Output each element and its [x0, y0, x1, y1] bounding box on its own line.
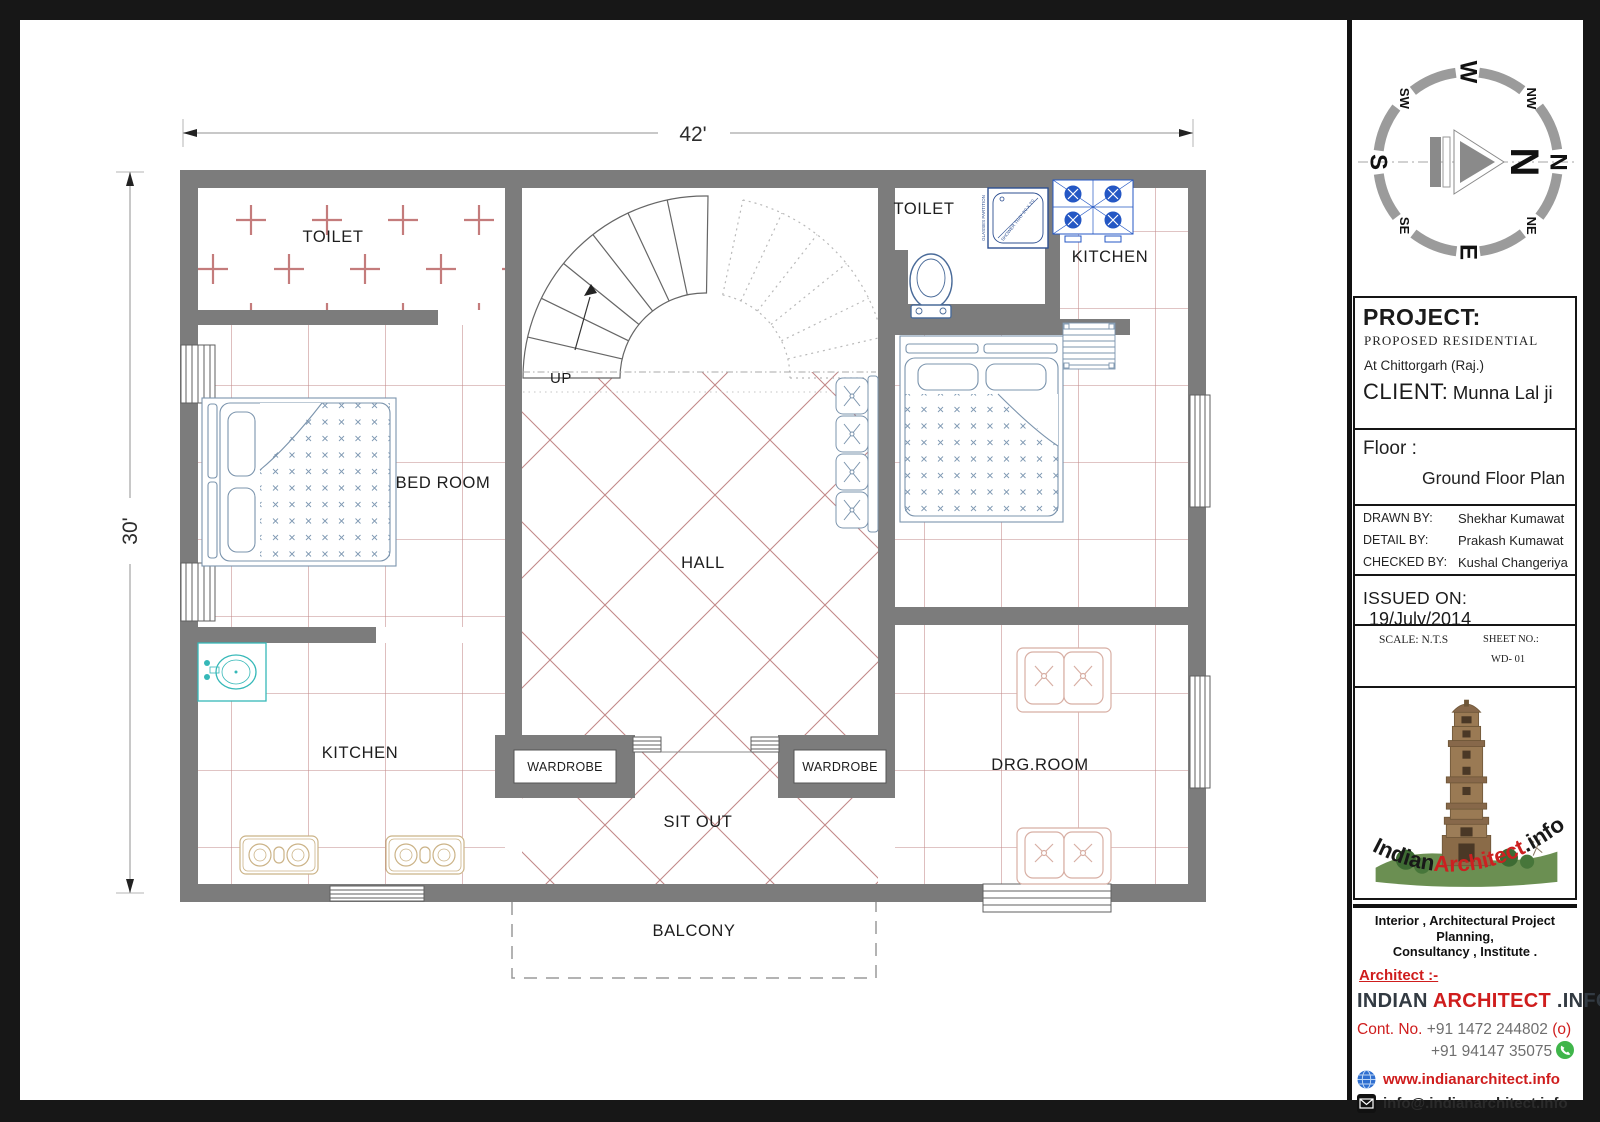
basin-icon	[198, 643, 266, 701]
credit-row: CHECKED BY: Kushal Changeriya	[1363, 555, 1575, 575]
checked-by-value: Kushal Changeriya	[1458, 555, 1568, 570]
compass-needle: N	[1430, 130, 1546, 194]
hall-label: HALL	[681, 554, 725, 572]
wc-icon	[910, 254, 952, 318]
project-box: PROJECT: PROPOSED RESIDENTIAL At Chittor…	[1353, 296, 1577, 430]
phone-1: +91 1472 244802	[1427, 1021, 1548, 1038]
shower-icon: GLASSES PARTITION SHOWER TRAY 3'0 X 3'0	[981, 188, 1048, 248]
staircase	[523, 196, 887, 392]
compass-w-label: W	[1455, 61, 1482, 84]
kitchen-right-label: KITCHEN	[1072, 248, 1149, 266]
floor-value: Ground Floor Plan	[1355, 468, 1565, 489]
scale-label: SCALE: N.T.S	[1379, 634, 1448, 646]
phone-2: +91 94147 35075	[1431, 1043, 1552, 1060]
compass-sw-label: SW	[1397, 88, 1412, 110]
kitchen-left-label: KITCHEN	[322, 744, 399, 762]
window-drg-room	[1190, 676, 1210, 788]
compass-e-label: E	[1455, 244, 1482, 260]
hall-floor	[522, 372, 878, 884]
floor-plan: GLASSES PARTITION SHOWER TRAY 3'0 X 3'0	[20, 20, 1347, 1100]
sofa-icon-hall	[836, 376, 878, 532]
compass-se-label: SE	[1397, 217, 1412, 235]
stove-icon	[1053, 180, 1133, 242]
client-name: Munna Lal ji	[1453, 382, 1553, 403]
floor-box: Floor : Ground Floor Plan	[1353, 428, 1577, 506]
window-bedroom-left-1	[181, 345, 215, 403]
checked-by-label: CHECKED BY:	[1363, 555, 1447, 569]
credit-row: DETAIL BY: Prakash Kumawat	[1363, 533, 1575, 553]
sheet-no-value: WD- 01	[1491, 654, 1525, 665]
compass-rose: N N E S W NW NE SW SE	[1352, 22, 1583, 294]
sheet-no-label: SHEET NO.:	[1483, 634, 1539, 645]
website-text: www.indianarchitect.info	[1383, 1071, 1560, 1088]
tower-logo: IndianArchitect.info	[1355, 688, 1577, 896]
dimension-top: 42'	[183, 118, 1193, 147]
toilet-left-floor	[198, 188, 505, 310]
sofa-icon-drg-bottom	[1017, 828, 1111, 884]
title-block-panel: N N E S W NW NE SW SE PROJECT: PROPOSED …	[1347, 20, 1583, 1100]
email-line: info@.indianarchitect.info	[1357, 1095, 1577, 1112]
brand-architect: ARCHITECT	[1433, 990, 1551, 1012]
balcony-outline	[512, 902, 876, 978]
scale-sheet-box: SCALE: N.T.S SHEET NO.: WD- 01	[1353, 624, 1577, 688]
sit-out-label: SIT OUT	[664, 813, 733, 831]
wardrobe-left-label: WARDROBE	[527, 760, 603, 774]
dimension-height-label: 30'	[119, 517, 142, 544]
dimension-width-label: 42'	[679, 123, 706, 146]
balcony-label: BALCONY	[652, 922, 735, 940]
credits-box: DRAWN BY: Shekhar Kumawat DETAIL BY: Pra…	[1353, 504, 1577, 576]
detail-by-label: DETAIL BY:	[1363, 533, 1428, 547]
dimension-left: 30'	[115, 172, 145, 893]
drawing-sheet: GLASSES PARTITION SHOWER TRAY 3'0 X 3'0	[20, 20, 1583, 1100]
services-line1: Interior , Architectural Project Plannin…	[1353, 913, 1577, 944]
hob-icon-1	[240, 836, 318, 874]
toilet-left-label: TOILET	[302, 228, 363, 246]
detail-by-value: Prakash Kumawat	[1458, 533, 1564, 548]
up-label: UP	[550, 370, 572, 387]
compass-ne-label: NE	[1524, 217, 1539, 235]
sill-right	[751, 737, 779, 752]
hob-icon-2	[386, 836, 464, 874]
credit-row: DRAWN BY: Shekhar Kumawat	[1363, 511, 1575, 531]
architect-label: Architect :-	[1359, 967, 1577, 984]
door-steps-drg	[983, 884, 1111, 912]
drawn-by-label: DRAWN BY:	[1363, 511, 1433, 525]
brand-wordmark: INDIAN ARCHITECT .INFO	[1357, 990, 1577, 1013]
contact-line-1: Cont. No. +91 1472 244802 (o)	[1357, 1021, 1577, 1039]
toilet-right-label: TOILET	[893, 200, 954, 218]
services-text: Interior , Architectural Project Plannin…	[1353, 913, 1577, 960]
email-text: info@.indianarchitect.info	[1383, 1095, 1568, 1112]
architect-info: Interior , Architectural Project Plannin…	[1353, 904, 1577, 1100]
globe-icon	[1357, 1070, 1376, 1093]
wardrobe-right-label: WARDROBE	[802, 760, 878, 774]
phone-1-note: (o)	[1552, 1021, 1571, 1038]
issued-label: ISSUED ON:	[1363, 588, 1467, 608]
contact-line-2: +91 94147 35075	[1431, 1041, 1577, 1064]
window-kitchen-left	[330, 886, 424, 901]
drawn-by-value: Shekhar Kumawat	[1458, 511, 1564, 526]
window-bedroom-right	[1190, 395, 1210, 507]
website-line: www.indianarchitect.info	[1357, 1071, 1577, 1088]
sill-left	[633, 737, 661, 752]
glass-partition-label: GLASSES PARTITION	[981, 195, 986, 241]
project-location: At Chittorgarh (Raj.)	[1364, 358, 1575, 373]
contact-label: Cont. No.	[1357, 1021, 1422, 1038]
services-line2: Consultancy , Institute .	[1353, 944, 1577, 960]
brand-indian: INDIAN	[1357, 990, 1428, 1012]
floor-label: Floor :	[1363, 438, 1575, 460]
issued-box: ISSUED ON: 19/July/2014	[1353, 574, 1577, 626]
project-heading: PROJECT:	[1363, 304, 1575, 331]
logo-box: IndianArchitect.info	[1353, 686, 1577, 900]
window-bedroom-left-2	[181, 563, 215, 621]
whatsapp-icon	[1556, 1041, 1574, 1064]
project-type: PROPOSED RESIDENTIAL	[1364, 333, 1575, 349]
email-icon	[1357, 1094, 1376, 1117]
bedroom-left-label: BED ROOM	[396, 474, 491, 492]
tower-illustration	[1442, 700, 1490, 866]
compass-n-label: N	[1545, 153, 1572, 170]
brand-info: .INFO	[1557, 990, 1600, 1012]
compass-s-label: S	[1365, 154, 1392, 170]
client-label: CLIENT:	[1363, 379, 1448, 404]
bed-icon-left	[202, 398, 396, 566]
compass-nw-label: NW	[1524, 88, 1539, 110]
client-row: CLIENT: Munna Lal ji	[1363, 379, 1575, 405]
sofa-icon-drg-top	[1017, 648, 1111, 712]
side-table-icon	[1063, 323, 1115, 369]
compass-needle-label: N	[1502, 148, 1546, 177]
drg-room-label: DRG.ROOM	[991, 756, 1088, 774]
bed-icon-right	[900, 336, 1063, 522]
